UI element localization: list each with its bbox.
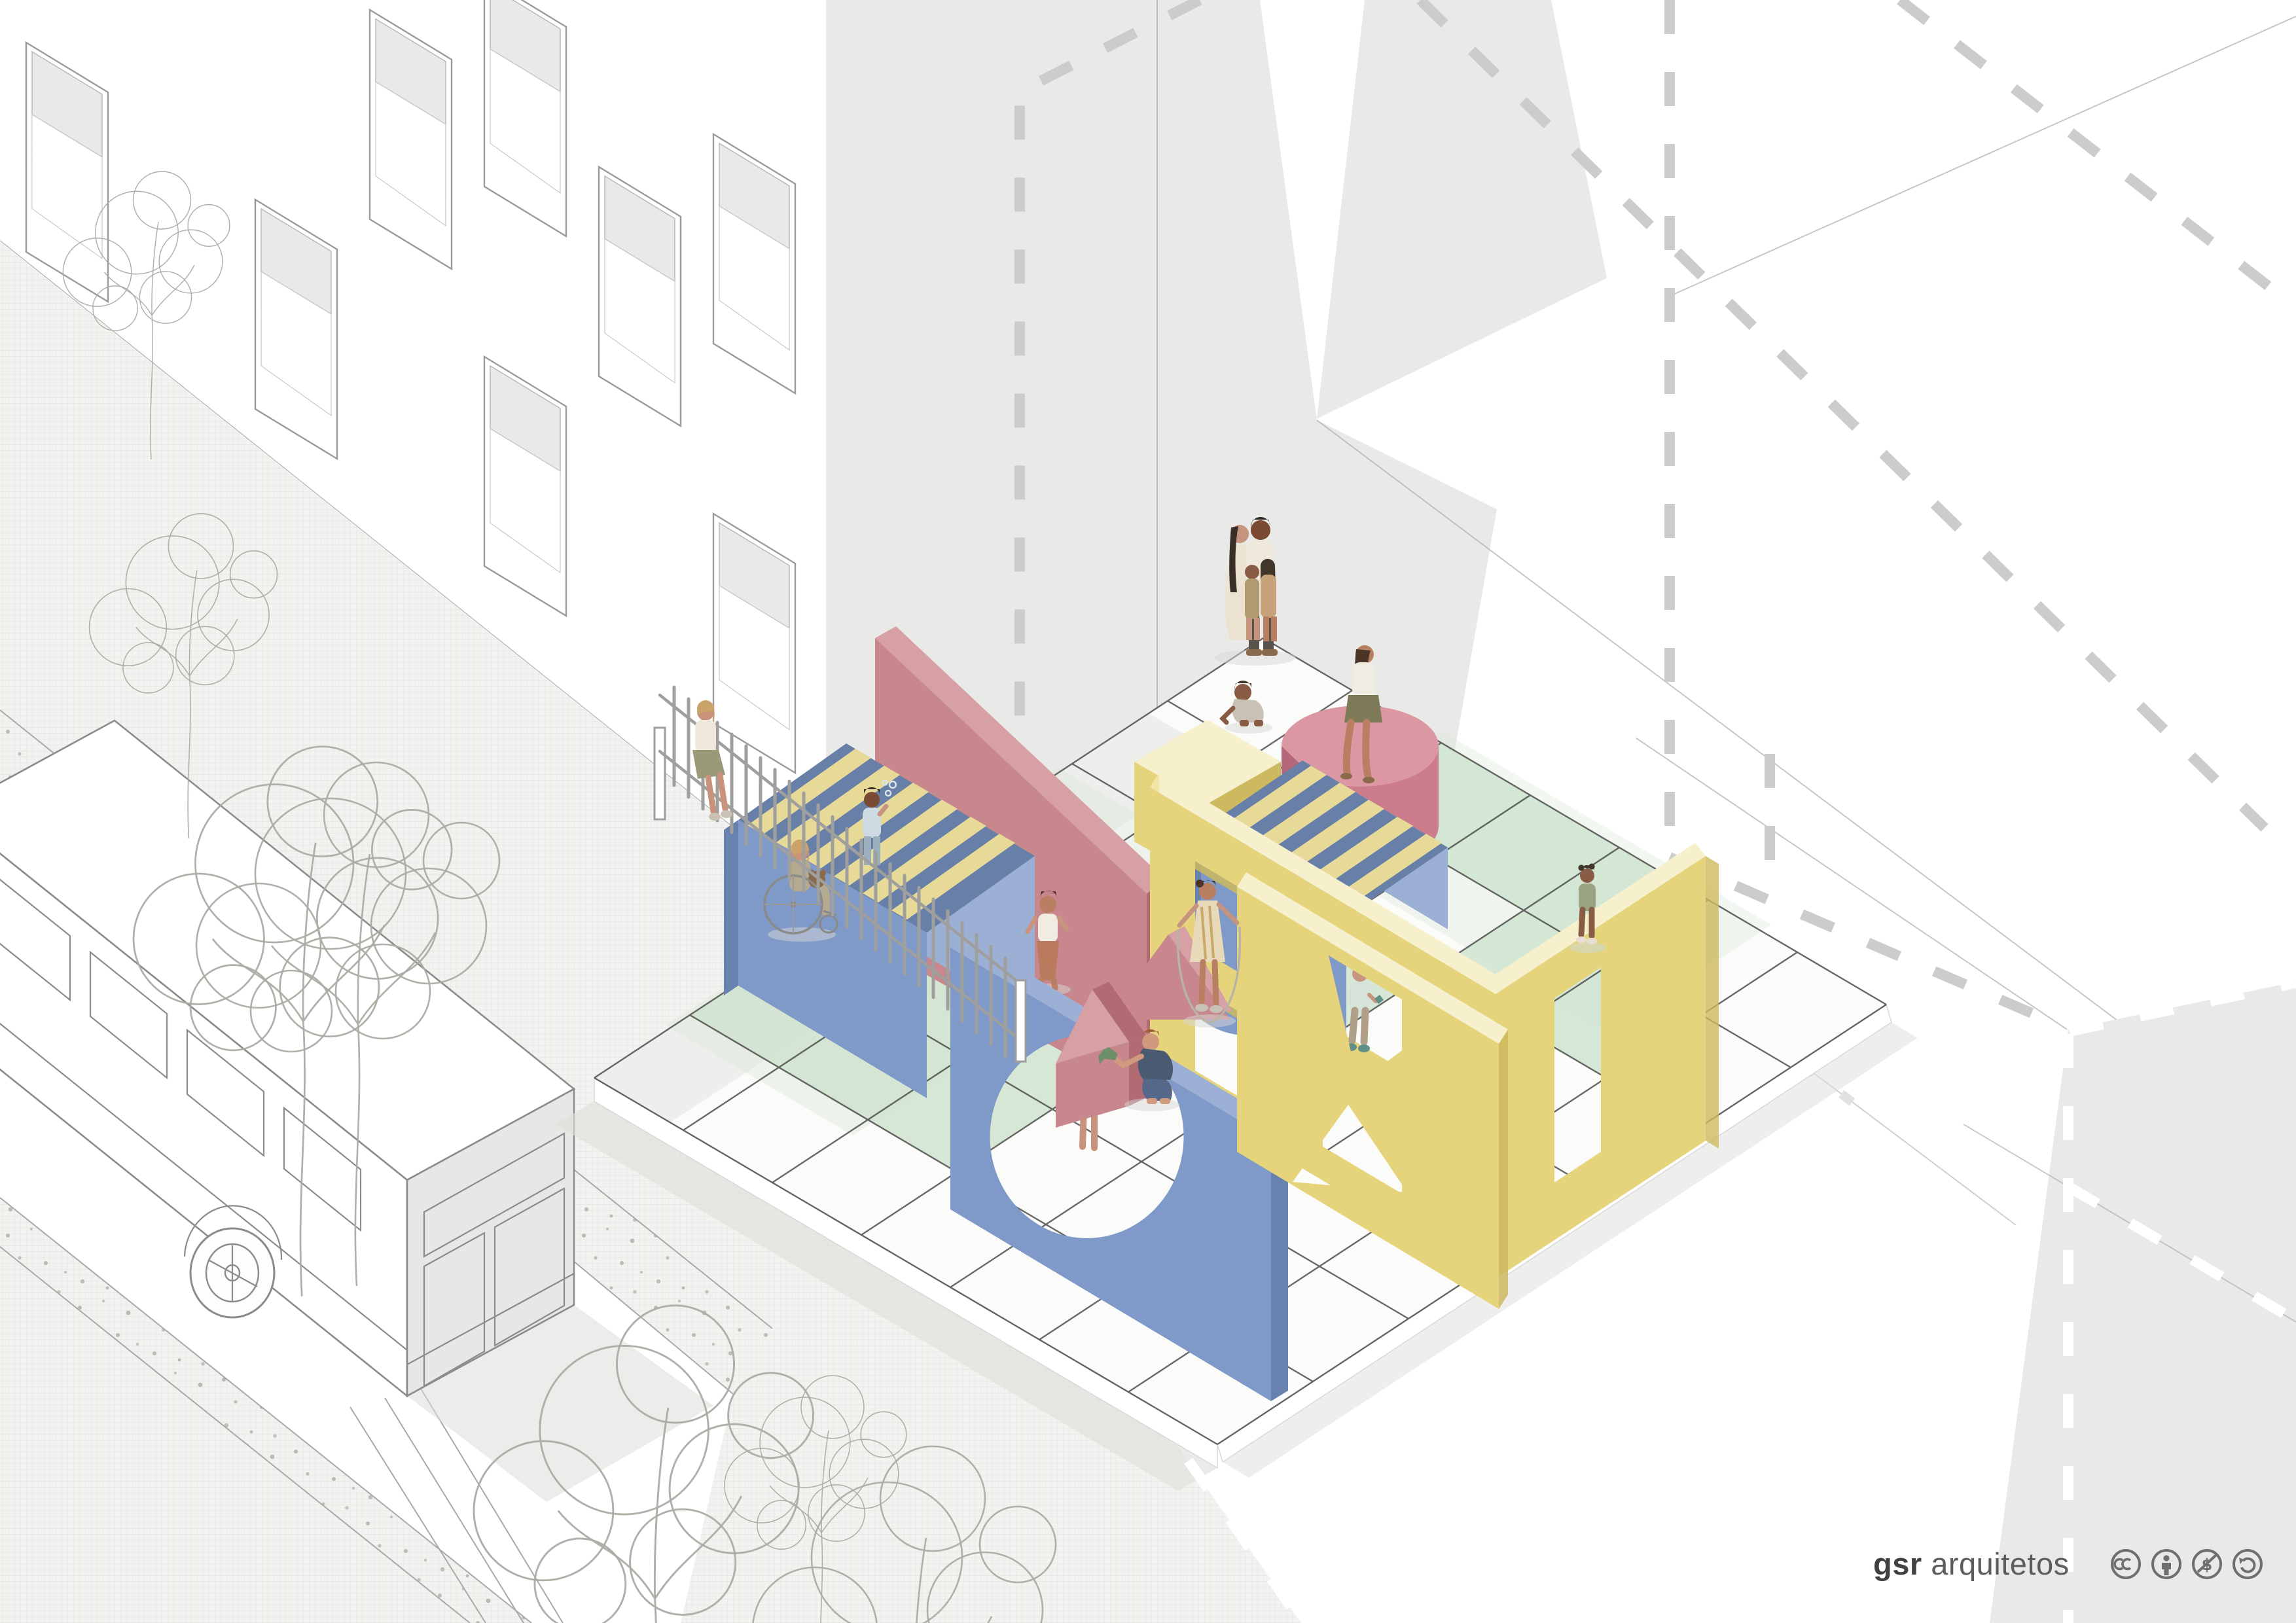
logo-secondary: arquitetos bbox=[1922, 1546, 2070, 1581]
logo-gsr-arquitetos: gsr arquitetos bbox=[1873, 1546, 2070, 1582]
credit-bar: gsr arquitetos $ bbox=[1873, 1546, 2265, 1582]
attribution-icon bbox=[2149, 1547, 2183, 1581]
creative-commons-icon bbox=[2109, 1547, 2143, 1581]
axonometric-illustration: gsr arquitetos $ bbox=[0, 0, 2296, 1623]
license-icons: $ bbox=[2109, 1547, 2265, 1581]
share-alike-icon bbox=[2231, 1547, 2265, 1581]
logo-primary: gsr bbox=[1873, 1546, 1922, 1581]
non-commercial-icon: $ bbox=[2190, 1547, 2224, 1581]
scene bbox=[0, 0, 2296, 1623]
